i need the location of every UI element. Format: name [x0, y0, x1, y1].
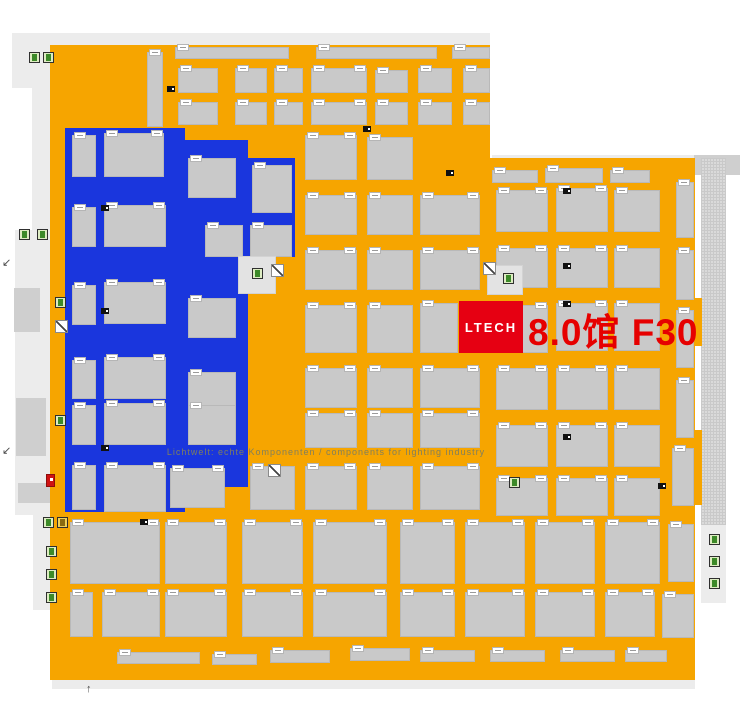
- exit-icon: [37, 229, 48, 240]
- booth: [420, 303, 458, 353]
- booth-number-chip: [374, 589, 386, 596]
- booth-number-chip: [582, 519, 594, 526]
- booth: [72, 360, 96, 399]
- booth-number-chip: [616, 475, 628, 482]
- booth-number-chip: [547, 165, 559, 172]
- booth: [252, 165, 292, 213]
- booth-number-chip: [313, 99, 325, 106]
- booth: [367, 195, 413, 235]
- booth: [367, 137, 413, 180]
- booth-number-chip: [172, 465, 184, 472]
- watermark-text: Lichtwelt: echte Komponenten / component…: [118, 447, 534, 457]
- direction-arrow: ↙: [2, 446, 11, 457]
- booth-number-chip: [595, 422, 607, 429]
- booth-number-chip: [595, 475, 607, 482]
- booth: [305, 195, 357, 235]
- booth: [313, 592, 387, 637]
- booth: [676, 182, 694, 238]
- booth: [556, 368, 608, 410]
- booth-number-chip: [252, 463, 264, 470]
- booth-number-chip: [678, 377, 690, 384]
- booth: [70, 592, 93, 637]
- booth: [535, 522, 595, 584]
- booth-number-chip: [422, 247, 434, 254]
- exit-icon: [709, 578, 720, 589]
- service-strip: [701, 158, 726, 525]
- booth-number-chip: [244, 519, 256, 526]
- exit-icon: [46, 592, 57, 603]
- booth-number-chip: [465, 99, 477, 106]
- booth: [668, 524, 694, 582]
- booth-number-chip: [369, 302, 381, 309]
- booth: [605, 522, 660, 584]
- booth: [305, 466, 357, 510]
- booth-number-chip: [595, 245, 607, 252]
- stairs-icon: [268, 464, 281, 477]
- booth: [242, 522, 303, 584]
- booth-number-chip: [537, 519, 549, 526]
- booth: [496, 425, 548, 467]
- booth: [305, 305, 357, 353]
- booth-number-chip: [467, 589, 479, 596]
- booth: [496, 478, 548, 516]
- booth-number-chip: [276, 65, 288, 72]
- booth-number-chip: [467, 365, 479, 372]
- booth-number-chip: [595, 185, 607, 192]
- booth-number-chip: [494, 167, 506, 174]
- booth-number-chip: [72, 519, 84, 526]
- booth-number-chip: [467, 192, 479, 199]
- booth: [605, 592, 655, 637]
- booth-number-chip: [422, 300, 434, 307]
- door-marker: [563, 188, 571, 194]
- booth-number-chip: [467, 463, 479, 470]
- exit-icon: [19, 229, 30, 240]
- stairs-icon: [271, 264, 284, 277]
- booth-number-chip: [237, 99, 249, 106]
- booth: [104, 403, 166, 445]
- exit-icon: [55, 297, 66, 308]
- booth: [104, 282, 166, 324]
- booth-number-chip: [607, 589, 619, 596]
- booth: [72, 285, 96, 325]
- booth: [70, 522, 160, 584]
- exit-icon: [29, 52, 40, 63]
- booth-number-chip: [467, 410, 479, 417]
- booth-number-chip: [315, 519, 327, 526]
- booth: [104, 357, 166, 399]
- stairs-icon: [483, 262, 496, 275]
- booth: [676, 380, 694, 438]
- corridor-strip: [15, 230, 50, 515]
- booth: [614, 478, 660, 516]
- booth-number-chip: [352, 645, 364, 652]
- booth-number-chip: [106, 354, 118, 361]
- booth: [420, 466, 480, 510]
- booth-number-chip: [467, 519, 479, 526]
- booth-number-chip: [272, 647, 284, 654]
- booth: [420, 195, 480, 235]
- booth-number-chip: [244, 589, 256, 596]
- booth-number-chip: [422, 647, 434, 654]
- booth-number-chip: [214, 519, 226, 526]
- booth: [250, 225, 292, 257]
- booth-number-chip: [180, 99, 192, 106]
- booth-number-chip: [254, 162, 266, 169]
- booth-number-chip: [642, 589, 654, 596]
- booth-number-chip: [167, 519, 179, 526]
- booth-number-chip: [374, 519, 386, 526]
- booth-number-chip: [512, 589, 524, 596]
- booth-number-chip: [214, 651, 226, 658]
- booth: [556, 425, 608, 467]
- booth: [367, 413, 413, 448]
- exit-icon: [46, 546, 57, 557]
- booth-number-chip: [616, 245, 628, 252]
- booth: [72, 405, 96, 445]
- booth-number-chip: [290, 519, 302, 526]
- booth-number-chip: [153, 462, 165, 469]
- booth: [556, 188, 608, 232]
- booth-number-chip: [535, 475, 547, 482]
- booth-number-chip: [354, 65, 366, 72]
- booth-number-chip: [106, 400, 118, 407]
- booth-number-chip: [344, 132, 356, 139]
- booth: [614, 248, 660, 288]
- booth: [188, 298, 236, 338]
- corridor-strip: [12, 33, 490, 45]
- corridor-strip: [32, 45, 50, 230]
- booth: [305, 368, 357, 408]
- booth: [367, 305, 413, 353]
- booth-number-chip: [153, 202, 165, 209]
- booth-number-chip: [627, 647, 639, 654]
- booth-number-chip: [153, 279, 165, 286]
- booth: [672, 448, 694, 506]
- booth-number-chip: [369, 134, 381, 141]
- booth-number-chip: [535, 245, 547, 252]
- booth-number-chip: [214, 589, 226, 596]
- booth-number-chip: [74, 282, 86, 289]
- exit-icon: [509, 477, 520, 488]
- booth: [205, 225, 243, 257]
- booth-number-chip: [147, 519, 159, 526]
- booth-number-chip: [402, 519, 414, 526]
- booth: [400, 522, 455, 584]
- booth-number-chip: [369, 410, 381, 417]
- booth-number-chip: [498, 245, 510, 252]
- booth-number-chip: [212, 465, 224, 472]
- booth-number-chip: [442, 519, 454, 526]
- booth-number-chip: [537, 589, 549, 596]
- corridor-strip: [52, 680, 695, 689]
- door-marker: [446, 170, 454, 176]
- booth-number-chip: [318, 44, 330, 51]
- booth: [305, 250, 357, 290]
- booth: [496, 190, 548, 232]
- booth-number-chip: [492, 647, 504, 654]
- booth-number-chip: [344, 410, 356, 417]
- booth-number-chip: [315, 589, 327, 596]
- booth: [367, 368, 413, 408]
- exhibition-floor-plan: ↙↙↑ Lichtwelt: echte Komponenten / compo…: [0, 0, 740, 703]
- fire-extinguisher-icon: [46, 474, 55, 487]
- ltech-logo-text: LTECH: [465, 320, 517, 335]
- booth: [72, 207, 96, 247]
- booth-number-chip: [465, 65, 477, 72]
- booth-number-chip: [104, 589, 116, 596]
- booth: [614, 425, 660, 467]
- booth-number-chip: [616, 422, 628, 429]
- booth-number-chip: [106, 279, 118, 286]
- door-marker: [363, 126, 371, 132]
- booth: [188, 405, 236, 445]
- door-marker: [101, 445, 109, 451]
- booth-number-chip: [377, 67, 389, 74]
- booth: [367, 250, 413, 290]
- booth-number-chip: [74, 132, 86, 139]
- booth-number-chip: [307, 365, 319, 372]
- direction-arrow: ↑: [86, 684, 92, 695]
- booth-number-chip: [307, 192, 319, 199]
- booth: [175, 47, 289, 59]
- booth: [400, 592, 455, 637]
- booth-number-chip: [616, 365, 628, 372]
- door-marker: [658, 483, 666, 489]
- booth: [242, 592, 303, 637]
- booth: [102, 592, 160, 637]
- booth: [662, 594, 694, 638]
- booth-number-chip: [422, 463, 434, 470]
- stair-core-block: [16, 398, 46, 456]
- booth-number-chip: [369, 463, 381, 470]
- booth-number-chip: [106, 462, 118, 469]
- exit-icon: [43, 517, 54, 528]
- booth: [305, 413, 357, 448]
- booth-number-chip: [190, 295, 202, 302]
- booth: [305, 135, 357, 180]
- booth-number-chip: [74, 402, 86, 409]
- booth-number-chip: [607, 519, 619, 526]
- stair-core-block: [14, 288, 40, 332]
- booth-number-chip: [177, 44, 189, 51]
- booth-number-chip: [422, 192, 434, 199]
- booth: [165, 592, 227, 637]
- booth-number-chip: [664, 591, 676, 598]
- booth-number-chip: [402, 589, 414, 596]
- booth: [188, 158, 236, 198]
- door-marker: [101, 308, 109, 314]
- booth-number-chip: [422, 410, 434, 417]
- booth-number-chip: [354, 99, 366, 106]
- booth-number-chip: [678, 247, 690, 254]
- booth: [104, 205, 166, 247]
- booth: [147, 52, 163, 127]
- booth-number-chip: [237, 65, 249, 72]
- exit-icon: [503, 273, 514, 284]
- exit-icon: [252, 268, 263, 279]
- booth-number-chip: [180, 65, 192, 72]
- booth-number-chip: [420, 65, 432, 72]
- booth: [72, 135, 96, 177]
- booth-number-chip: [535, 365, 547, 372]
- booth-number-chip: [582, 589, 594, 596]
- booth-number-chip: [512, 519, 524, 526]
- booth-number-chip: [562, 647, 574, 654]
- booth: [676, 250, 694, 300]
- booth-number-chip: [207, 222, 219, 229]
- booth: [420, 413, 480, 448]
- booth-number-chip: [535, 422, 547, 429]
- booth-number-chip: [290, 589, 302, 596]
- booth-number-chip: [616, 187, 628, 194]
- booth: [535, 592, 595, 637]
- booth-number-chip: [369, 192, 381, 199]
- booth-number-chip: [595, 365, 607, 372]
- booth-number-chip: [498, 365, 510, 372]
- booth-number-chip: [119, 649, 131, 656]
- booth-number-chip: [167, 589, 179, 596]
- door-marker: [101, 205, 109, 211]
- booth: [104, 465, 166, 512]
- booth-number-chip: [647, 519, 659, 526]
- hall-floor: [695, 430, 702, 505]
- booth: [614, 190, 660, 232]
- booth: [556, 478, 608, 516]
- booth: [104, 133, 164, 177]
- booth-number-chip: [72, 589, 84, 596]
- booth-number-chip: [74, 462, 86, 469]
- booth-number-chip: [558, 475, 570, 482]
- booth-number-chip: [149, 49, 161, 56]
- booth-number-chip: [442, 589, 454, 596]
- booth-number-chip: [190, 155, 202, 162]
- booth-number-chip: [307, 247, 319, 254]
- booth-number-chip: [190, 369, 202, 376]
- booth-number-chip: [153, 400, 165, 407]
- booth-number-chip: [535, 187, 547, 194]
- booth: [465, 592, 525, 637]
- booth-number-chip: [344, 302, 356, 309]
- booth-number-chip: [153, 354, 165, 361]
- booth-number-chip: [612, 167, 624, 174]
- booth-number-chip: [106, 130, 118, 137]
- booth: [420, 368, 480, 408]
- booth-number-chip: [190, 402, 202, 409]
- booth: [614, 368, 660, 410]
- door-marker: [140, 519, 148, 525]
- booth-number-chip: [307, 302, 319, 309]
- booth-number-chip: [498, 422, 510, 429]
- booth-number-chip: [558, 365, 570, 372]
- exit-icon: [46, 569, 57, 580]
- stairs-icon: [55, 320, 68, 333]
- booth: [465, 522, 525, 584]
- booth-number-chip: [74, 357, 86, 364]
- hall-booth-label: 8.0馆 F30: [528, 302, 698, 356]
- booth: [367, 466, 413, 510]
- direction-arrow: ↙: [2, 258, 11, 269]
- door-marker: [563, 263, 571, 269]
- booth: [496, 368, 548, 410]
- door-marker: [563, 434, 571, 440]
- booth-number-chip: [252, 222, 264, 229]
- booth-number-chip: [558, 422, 570, 429]
- booth-number-chip: [344, 247, 356, 254]
- booth-number-chip: [313, 65, 325, 72]
- booth-number-chip: [369, 247, 381, 254]
- booth-number-chip: [467, 247, 479, 254]
- booth: [170, 468, 225, 508]
- facility-icon: [57, 517, 68, 528]
- booth-number-chip: [369, 365, 381, 372]
- booth-number-chip: [422, 365, 434, 372]
- exit-icon: [709, 534, 720, 545]
- booth-number-chip: [454, 44, 466, 51]
- booth-number-chip: [344, 463, 356, 470]
- booth-number-chip: [147, 589, 159, 596]
- exit-icon: [709, 556, 720, 567]
- booth-number-chip: [344, 365, 356, 372]
- booth-number-chip: [307, 132, 319, 139]
- booth-number-chip: [151, 130, 163, 137]
- booth-number-chip: [307, 410, 319, 417]
- exit-icon: [43, 52, 54, 63]
- exit-icon: [55, 415, 66, 426]
- booth-number-chip: [558, 245, 570, 252]
- booth-number-chip: [276, 99, 288, 106]
- ltech-booth-marker[interactable]: LTECH: [459, 301, 523, 353]
- booth-number-chip: [498, 187, 510, 194]
- booth-number-chip: [377, 99, 389, 106]
- booth: [313, 522, 387, 584]
- booth: [420, 250, 480, 290]
- booth-number-chip: [670, 521, 682, 528]
- booth: [165, 522, 227, 584]
- booth-number-chip: [74, 204, 86, 211]
- booth-number-chip: [420, 99, 432, 106]
- booth: [316, 47, 437, 59]
- booth-number-chip: [344, 192, 356, 199]
- booth: [72, 465, 96, 510]
- door-marker: [167, 86, 175, 92]
- booth-number-chip: [678, 179, 690, 186]
- booth-number-chip: [307, 463, 319, 470]
- booth-number-chip: [674, 445, 686, 452]
